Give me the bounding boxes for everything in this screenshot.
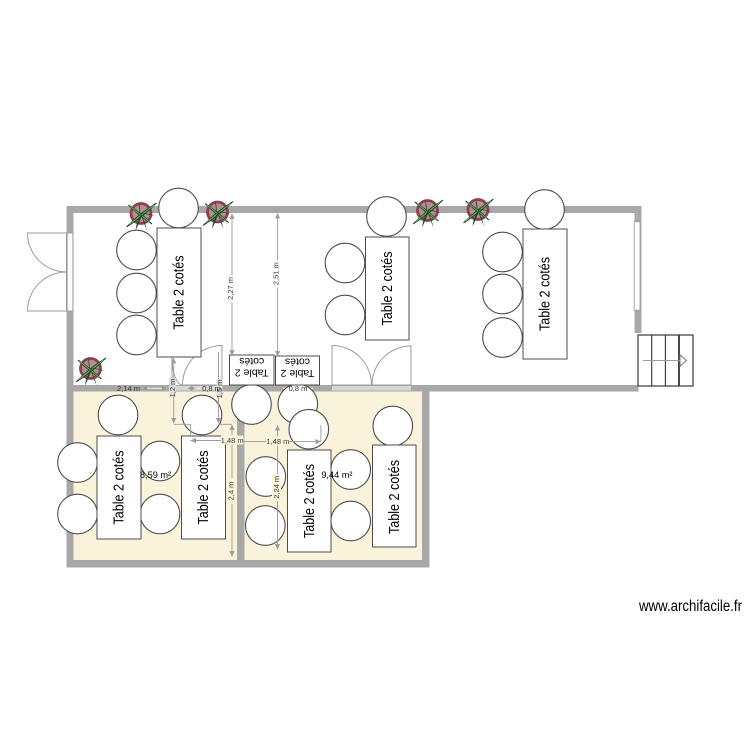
svg-text:9,44 m²: 9,44 m² (321, 470, 352, 480)
svg-text:0,8 m: 0,8 m (289, 384, 308, 393)
svg-text:Table 2 cotés: Table 2 cotés (386, 460, 403, 534)
svg-text:0,8 m: 0,8 m (202, 384, 221, 393)
svg-text:www.archifacile.fr: www.archifacile.fr (638, 598, 742, 615)
svg-text:Table 2 cotés: Table 2 cotés (171, 256, 188, 330)
svg-text:1,48 m: 1,48 m (266, 437, 289, 446)
svg-text:Table 2 cotés: Table 2 cotés (379, 252, 396, 326)
svg-text:8,59 m²: 8,59 m² (140, 470, 171, 480)
svg-text:Table 2 cotés: Table 2 cotés (537, 257, 554, 331)
svg-text:Table 2 cotés: Table 2 cotés (195, 451, 212, 525)
svg-text:2,51 m: 2,51 m (272, 262, 281, 285)
svg-text:Table 2cotés: Table 2cotés (235, 355, 269, 379)
svg-text:2,4 m: 2,4 m (226, 482, 235, 501)
svg-text:2,24 m: 2,24 m (272, 476, 281, 499)
svg-text:1,48 m: 1,48 m (221, 436, 244, 445)
svg-text:Table 2 cotés: Table 2 cotés (301, 464, 318, 538)
svg-text:Table 2 cotés: Table 2 cotés (111, 451, 128, 525)
svg-text:2,14 m: 2,14 m (117, 384, 140, 393)
svg-text:Table 2cotés: Table 2cotés (280, 356, 314, 380)
svg-text:1,2 m: 1,2 m (168, 379, 177, 398)
svg-text:2,27 m: 2,27 m (226, 277, 235, 300)
